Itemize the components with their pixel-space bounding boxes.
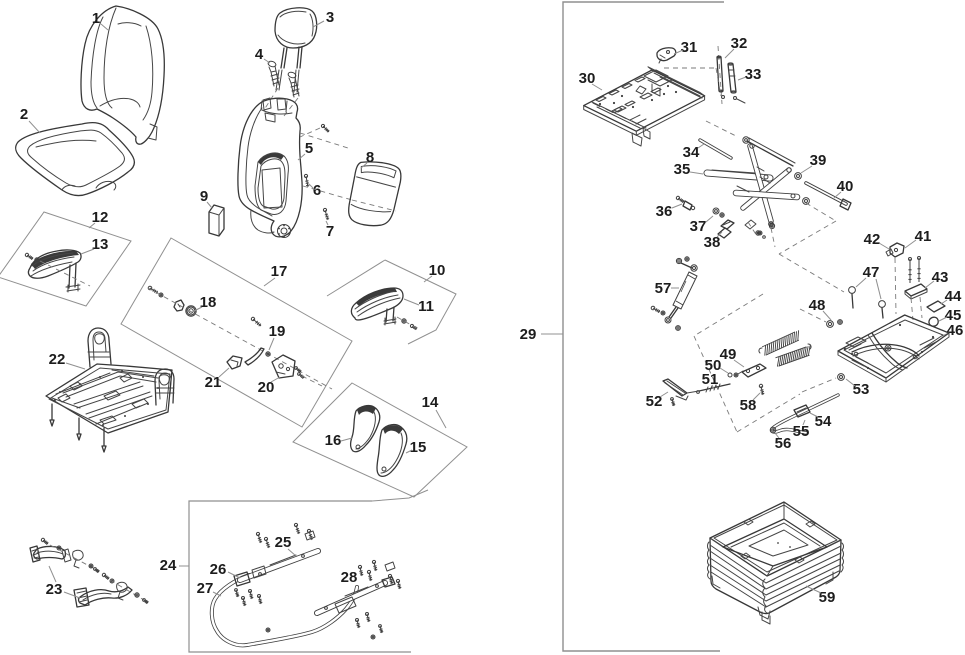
svg-text:56: 56 — [775, 435, 792, 452]
svg-text:24: 24 — [160, 557, 177, 574]
svg-text:42: 42 — [864, 231, 881, 248]
svg-text:3: 3 — [326, 9, 334, 26]
svg-text:1: 1 — [92, 10, 100, 27]
svg-text:37: 37 — [690, 218, 707, 235]
svg-text:19: 19 — [269, 323, 286, 340]
svg-text:35: 35 — [674, 161, 691, 178]
svg-text:18: 18 — [200, 294, 217, 311]
svg-text:34: 34 — [683, 144, 700, 161]
svg-text:53: 53 — [853, 381, 870, 398]
svg-text:11: 11 — [418, 298, 434, 315]
svg-text:29: 29 — [520, 326, 537, 343]
svg-text:40: 40 — [837, 178, 854, 195]
svg-text:51: 51 — [702, 371, 719, 388]
svg-text:25: 25 — [275, 534, 292, 551]
svg-text:27: 27 — [197, 580, 214, 597]
svg-text:36: 36 — [656, 203, 673, 220]
svg-text:14: 14 — [422, 394, 439, 411]
svg-text:31: 31 — [681, 39, 698, 56]
svg-text:59: 59 — [819, 589, 836, 606]
svg-text:54: 54 — [815, 413, 832, 430]
svg-text:33: 33 — [745, 66, 762, 83]
svg-text:5: 5 — [305, 140, 313, 157]
svg-text:28: 28 — [341, 569, 358, 586]
svg-text:41: 41 — [915, 228, 932, 245]
svg-text:55: 55 — [793, 423, 810, 440]
svg-text:4: 4 — [255, 46, 264, 63]
svg-text:15: 15 — [410, 439, 427, 456]
svg-text:7: 7 — [326, 223, 334, 240]
svg-text:16: 16 — [325, 432, 342, 449]
svg-text:23: 23 — [46, 581, 63, 598]
svg-text:26: 26 — [210, 561, 227, 578]
svg-text:52: 52 — [646, 393, 663, 410]
svg-text:13: 13 — [92, 236, 109, 253]
svg-text:57: 57 — [655, 280, 672, 297]
svg-text:43: 43 — [932, 269, 949, 286]
svg-text:17: 17 — [271, 263, 288, 280]
svg-text:44: 44 — [945, 288, 962, 305]
svg-text:22: 22 — [49, 351, 66, 368]
svg-text:6: 6 — [313, 182, 321, 199]
svg-text:2: 2 — [20, 106, 28, 123]
